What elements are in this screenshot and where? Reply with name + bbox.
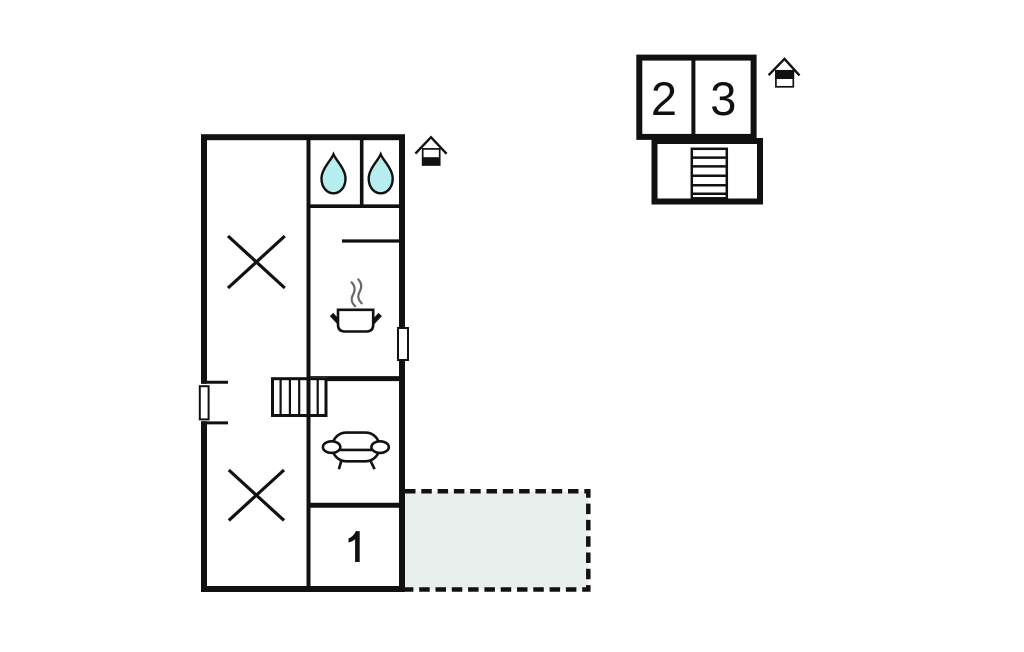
- svg-text:3: 3: [710, 72, 736, 125]
- svg-text:2: 2: [651, 72, 677, 125]
